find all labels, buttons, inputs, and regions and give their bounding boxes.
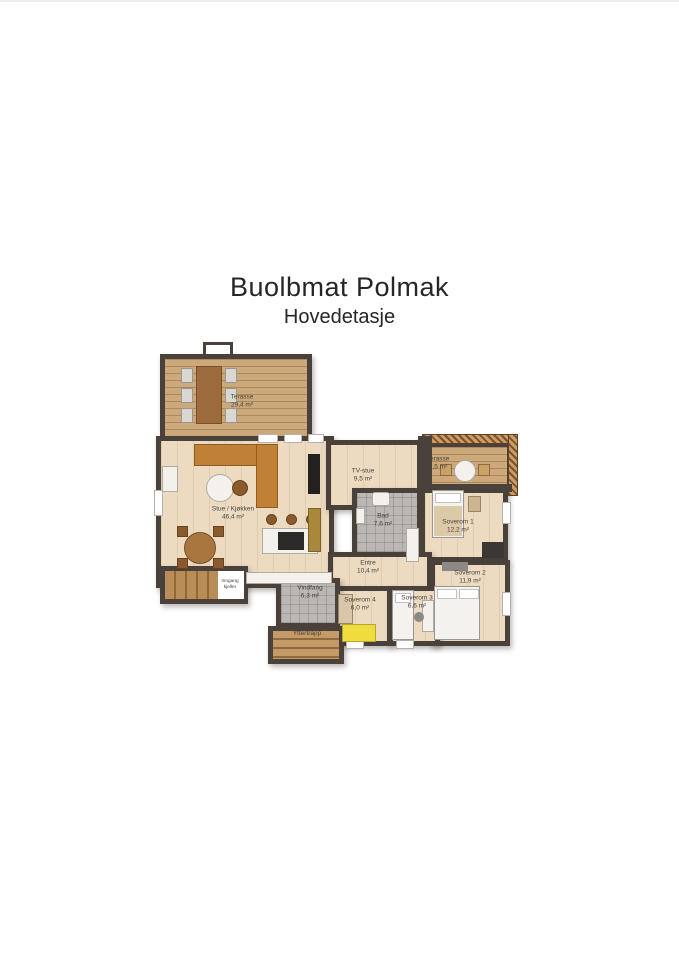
room-label-bedroom-3: Soverom 3 6,6 m² bbox=[401, 595, 432, 612]
bed-yellow bbox=[342, 624, 376, 642]
room-area: 10,4 m² bbox=[357, 568, 379, 576]
room-name: Soverom 3 bbox=[401, 595, 432, 603]
room-area: 6,6 m² bbox=[401, 603, 432, 611]
window bbox=[396, 640, 414, 649]
terrace-step bbox=[203, 342, 233, 357]
room-name: Soverom 2 bbox=[454, 570, 485, 578]
page-subtitle: Hovedetasje bbox=[0, 306, 679, 329]
room-area: 11,9 m² bbox=[454, 578, 485, 586]
kitchen-counter bbox=[246, 572, 332, 584]
room-area: 6,3 m² bbox=[297, 593, 323, 601]
room-label-vestibule: Vindfang 6,3 m² bbox=[297, 585, 323, 602]
window bbox=[284, 434, 302, 443]
room-label-terrace-small: Terasse 9,5 m² bbox=[427, 456, 450, 473]
toilet bbox=[372, 492, 390, 506]
sink bbox=[356, 508, 365, 524]
room-label-basement-entry: Inngang kjeller bbox=[221, 579, 238, 591]
room-label-bedroom-1: Soverom 1 12,2 m² bbox=[442, 519, 473, 536]
floor-plan: Terasse 29,4 m² Stue / Kjøkken 46,4 m² T… bbox=[150, 340, 530, 675]
wardrobe bbox=[482, 542, 504, 558]
bar-stool bbox=[286, 514, 297, 525]
room-label-bedroom-2: Soverom 2 11,9 m² bbox=[454, 570, 485, 587]
room-area: 6,0 m² bbox=[344, 605, 375, 613]
room-name: Soverom 4 bbox=[344, 597, 375, 605]
room-area: 46,4 m² bbox=[212, 514, 254, 522]
window bbox=[308, 434, 324, 443]
desk-chair bbox=[414, 612, 424, 622]
shower bbox=[406, 528, 419, 562]
room-label-bedroom-4: Soverom 4 6,0 m² bbox=[344, 597, 375, 614]
room-area: 9,5 m² bbox=[352, 476, 374, 484]
room-name: Vindfang bbox=[297, 585, 323, 593]
room-name: Yttertrapp bbox=[293, 630, 322, 638]
dining-chair bbox=[177, 558, 188, 569]
room-name: TV-stue bbox=[352, 468, 374, 476]
room-label-outer-stair: Yttertrapp bbox=[293, 630, 322, 638]
room-name: Entre bbox=[357, 560, 379, 568]
outdoor-chair bbox=[181, 388, 193, 403]
tv-unit bbox=[308, 454, 320, 494]
room-name: Terasse bbox=[231, 394, 254, 402]
terrace-railing-top bbox=[422, 434, 518, 444]
room-label-living-kitchen: Stue / Kjøkken 46,4 m² bbox=[212, 506, 254, 523]
pillow bbox=[459, 589, 479, 599]
bar-stool bbox=[266, 514, 277, 525]
outdoor-dining-table bbox=[196, 366, 222, 424]
room-name: Bad bbox=[374, 513, 392, 521]
dining-chair bbox=[213, 558, 224, 569]
title-block: Buolbmat Polmak Hovedetasje bbox=[0, 272, 679, 329]
window bbox=[154, 490, 163, 516]
armchair bbox=[162, 466, 178, 492]
dining-table bbox=[184, 532, 216, 564]
window bbox=[258, 434, 278, 443]
bed-double bbox=[434, 586, 480, 640]
side-table bbox=[232, 480, 248, 496]
coffee-table bbox=[206, 474, 234, 502]
room-label-bathroom: Bad 7,6 m² bbox=[374, 513, 392, 530]
room-name: Terasse bbox=[427, 456, 450, 464]
outdoor-chair bbox=[181, 408, 193, 423]
window bbox=[502, 592, 511, 616]
sofa bbox=[256, 444, 278, 508]
pillow bbox=[435, 493, 461, 503]
patio-table bbox=[454, 460, 476, 482]
pillow bbox=[437, 589, 457, 599]
page-title: Buolbmat Polmak bbox=[0, 272, 679, 303]
outdoor-chair bbox=[181, 368, 193, 383]
room-area: 9,5 m² bbox=[427, 464, 450, 472]
room-label-tv-room: TV-stue 9,5 m² bbox=[352, 468, 374, 485]
outdoor-chair bbox=[225, 368, 237, 383]
dining-chair bbox=[177, 526, 188, 537]
room-area: 7,6 m² bbox=[374, 521, 392, 529]
room-label-entry-hall: Entre 10,4 m² bbox=[357, 560, 379, 577]
room-area: 29,4 m² bbox=[231, 402, 254, 410]
dining-chair bbox=[213, 526, 224, 537]
cooktop bbox=[278, 532, 304, 550]
room-name: Soverom 1 bbox=[442, 519, 473, 527]
scan-artifact-line bbox=[0, 0, 679, 2]
room-name: Stue / Kjøkken bbox=[212, 506, 254, 514]
tall-cabinet bbox=[308, 508, 321, 552]
room-name: kjeller bbox=[221, 585, 238, 591]
room-label-terrace-large: Terasse 29,4 m² bbox=[231, 394, 254, 411]
patio-chair bbox=[478, 464, 490, 476]
bedside-table bbox=[468, 496, 481, 512]
room-area: 12,2 m² bbox=[442, 527, 473, 535]
window bbox=[502, 502, 511, 524]
